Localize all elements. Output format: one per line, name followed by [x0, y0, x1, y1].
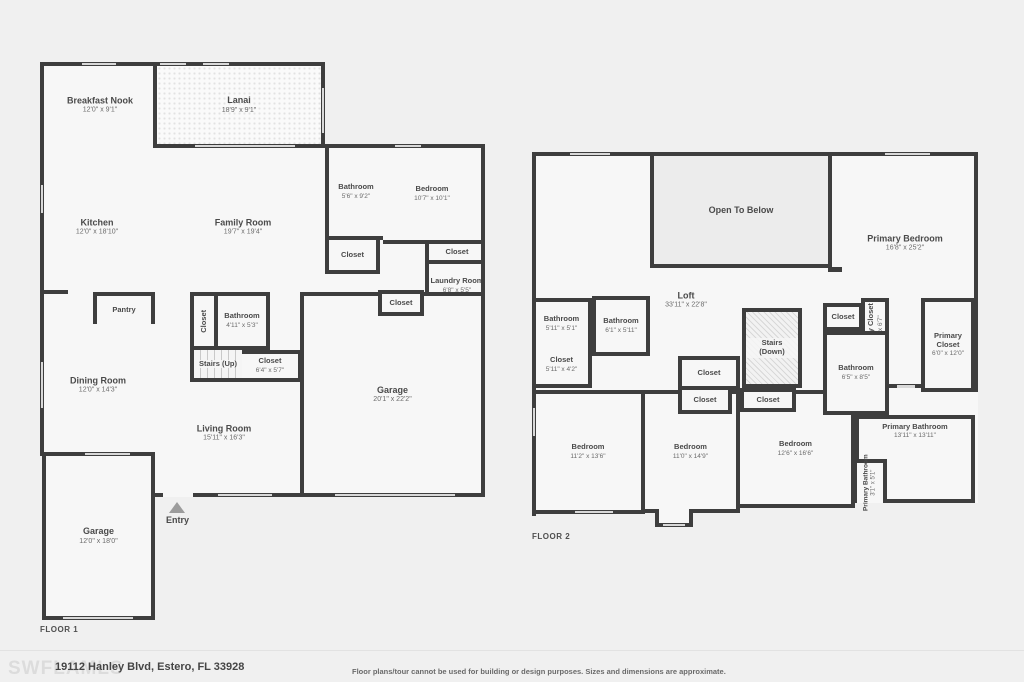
room-closet-stairs: Closet	[190, 292, 214, 350]
room-label: Primary Bathroom 3'1" x 5'1"	[862, 455, 877, 512]
room-label: Stairs (Up)	[197, 360, 239, 369]
window-marker	[575, 511, 613, 514]
footer-divider	[0, 650, 1024, 651]
window-marker	[41, 362, 44, 408]
room-label: Stairs (Down)	[746, 338, 798, 357]
room-closet-br: Closet	[740, 388, 796, 412]
room-label: Bedroom 12'6" x 16'6"	[778, 440, 814, 457]
garage-door-marker	[335, 494, 455, 497]
room-pantry: Pantry	[93, 292, 155, 324]
room-closet-garage: Closet	[378, 290, 424, 316]
room-label: Bedroom 10'7" x 10'1"	[414, 185, 450, 202]
wall-segment	[151, 452, 155, 497]
disclaimer-text: Floor plans/tour cannot be used for buil…	[352, 667, 726, 676]
floor-plan-canvas: Lanai 18'9" x 9'1" Bathroom 5'6" x 9'2" …	[0, 0, 1024, 682]
room-bedroom-left: Bedroom 11'2" x 13'6"	[535, 390, 645, 514]
room-label: Closet	[341, 251, 364, 260]
room-label: Closet	[694, 396, 717, 405]
room-label: Closet	[698, 369, 721, 378]
window-marker	[663, 524, 685, 527]
room-kitchen-label: Kitchen 12'0" x 18'10"	[76, 217, 118, 236]
room-bathroom-b: Bathroom 6'1" x 5'11"	[592, 296, 650, 356]
room-label: Bathroom 6'1" x 5'11"	[603, 317, 638, 334]
room-label: Closet	[446, 248, 469, 257]
room-label: Closet 6'4" x 5'7"	[256, 357, 284, 374]
room-label: Closet	[757, 396, 780, 405]
room-bathroom-a: Bathroom 5'11" x 5'1"	[535, 298, 592, 350]
window-marker	[41, 185, 44, 213]
room-label: Primary Closet 6'0" x 12'0"	[925, 332, 971, 358]
room-primary-bathroom-small: Primary Bathroom 3'1" x 5'1"	[857, 459, 887, 503]
window-marker	[82, 63, 116, 66]
window-marker	[897, 385, 915, 388]
room-closet-a: Closet 5'11" x 4'2"	[535, 346, 592, 388]
room-stairs-up: Stairs (Up)	[190, 350, 242, 382]
room-living-room-label: Living Room 15'11" x 16'3"	[197, 423, 252, 442]
wall-segment	[481, 244, 485, 312]
room-bathroom-1: Bathroom 5'6" x 9'2"	[325, 144, 387, 240]
entry-label: Entry	[166, 515, 189, 525]
window-marker	[533, 408, 536, 436]
window-marker	[85, 453, 130, 456]
room-label: Closet	[390, 299, 413, 308]
room-closet-hall: Closet 6'4" x 5'7"	[242, 350, 302, 382]
room-closet-bedroom: Closet	[425, 244, 485, 264]
room-bathroom-c: Bathroom 6'5" x 8'5"	[823, 331, 889, 415]
window-marker	[322, 88, 325, 133]
room-open-to-below: Open To Below	[650, 152, 832, 268]
room-label: Primary Bathroom 13'11" x 13'11"	[882, 416, 947, 503]
room-closet-bath: Closet	[325, 240, 380, 274]
property-address: 19112 Hanley Blvd, Estero, FL 33928	[55, 661, 244, 673]
room-label: Lanai 18'9" x 9'1"	[222, 95, 257, 114]
room-primary-closet: Primary Closet 6'0" x 12'0"	[921, 298, 975, 392]
floor1-interior-fill	[153, 440, 305, 497]
window-marker	[395, 145, 421, 148]
window-marker	[885, 153, 930, 156]
room-closet-bl: Closet	[678, 390, 732, 414]
floor2-label: FLOOR 2	[532, 532, 570, 541]
room-breakfast-nook-label: Breakfast Nook 12'0" x 9'1"	[67, 95, 133, 114]
room-label: Bathroom 6'5" x 8'5"	[838, 364, 873, 381]
window-marker	[570, 153, 610, 156]
room-label: Bathroom 4'11" x 5'3"	[224, 312, 259, 329]
room-dining-room-label: Dining Room 12'0" x 14'3"	[70, 375, 126, 394]
window-marker	[218, 494, 272, 497]
room-label: Pantry	[112, 306, 135, 315]
room-label: Garage 12'0" x 18'0"	[79, 526, 117, 545]
sliding-door-marker	[195, 145, 295, 148]
room-label: Closet	[200, 310, 209, 333]
wall-segment	[40, 290, 68, 294]
room-bathroom-2: Bathroom 4'11" x 5'3"	[214, 292, 270, 350]
room-label: Closet 5'11" x 4'2"	[546, 356, 578, 373]
wall-segment	[974, 152, 978, 392]
garage-door-marker	[63, 617, 133, 620]
room-label: Open To Below	[709, 205, 774, 215]
window-marker	[160, 63, 186, 66]
room-label: Bedroom 11'2" x 13'6"	[570, 443, 605, 460]
floor1-label: FLOOR 1	[40, 625, 78, 634]
room-closet-stair: Closet	[678, 356, 740, 390]
room-garage-main: Garage 20'1" x 22'2"	[300, 292, 485, 497]
wall-segment	[532, 152, 536, 516]
room-label: Garage 20'1" x 22'2"	[373, 385, 411, 404]
room-stairs-down: Stairs (Down)	[742, 308, 802, 388]
room-loft-label: Loft 33'11" x 22'8"	[665, 290, 707, 309]
window-marker	[203, 63, 229, 66]
room-closet-c: Closet	[823, 303, 863, 331]
room-garage-left: Garage 12'0" x 18'0"	[42, 452, 155, 620]
room-label: Bathroom 5'6" x 9'2"	[338, 183, 373, 200]
room-bedroom-f1: Bedroom 10'7" x 10'1"	[383, 144, 485, 244]
room-primary-bedroom-label: Primary Bedroom 16'8" x 25'2"	[867, 233, 943, 252]
room-family-room-label: Family Room 19'7" x 19'4"	[215, 217, 272, 236]
room-label: Bathroom 5'11" x 5'1"	[544, 315, 579, 332]
room-lanai: Lanai 18'9" x 9'1"	[153, 62, 325, 148]
room-label: Closet	[832, 313, 855, 322]
wall-segment	[828, 267, 842, 272]
entry-arrow-icon	[169, 502, 185, 513]
room-label: Bedroom 11'0" x 14'9"	[673, 443, 708, 460]
